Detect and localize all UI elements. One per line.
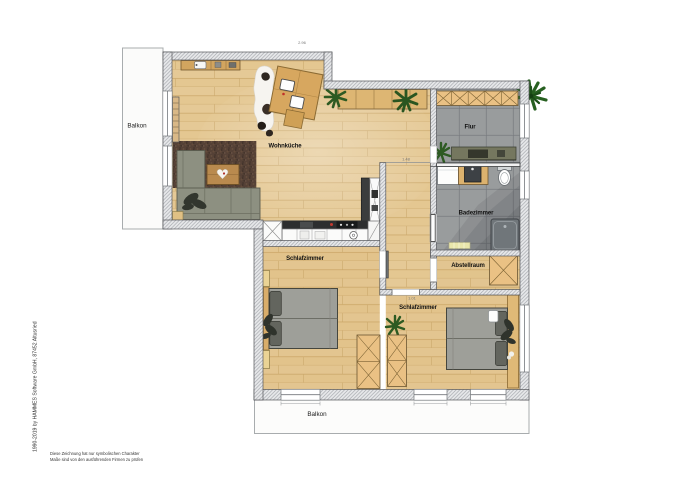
- svg-text:Schlafzimmer: Schlafzimmer: [286, 256, 325, 262]
- svg-text:Badezimmer: Badezimmer: [459, 210, 494, 216]
- svg-text:Abstellraum: Abstellraum: [451, 263, 485, 269]
- svg-text:Balkon: Balkon: [307, 411, 327, 418]
- svg-text:1.01: 1.01: [408, 296, 417, 301]
- svg-text:Schlafzimmer: Schlafzimmer: [399, 305, 438, 311]
- svg-text:Balkon: Balkon: [127, 123, 147, 130]
- svg-text:Flur: Flur: [465, 124, 477, 130]
- svg-text:Diese Zeichnung hat nur symbol: Diese Zeichnung hat nur symbolischen Cha…: [50, 451, 140, 456]
- svg-text:2.96: 2.96: [298, 40, 307, 45]
- svg-text:Maße sind von den ausführenden: Maße sind von den ausführenden Firmen zu…: [50, 457, 144, 462]
- svg-text:1990-2019 by HAMMES Software G: 1990-2019 by HAMMES Software GmbH, 87452…: [33, 321, 39, 452]
- svg-text:Wohnküche: Wohnküche: [269, 143, 303, 149]
- svg-text:1.48: 1.48: [402, 157, 411, 162]
